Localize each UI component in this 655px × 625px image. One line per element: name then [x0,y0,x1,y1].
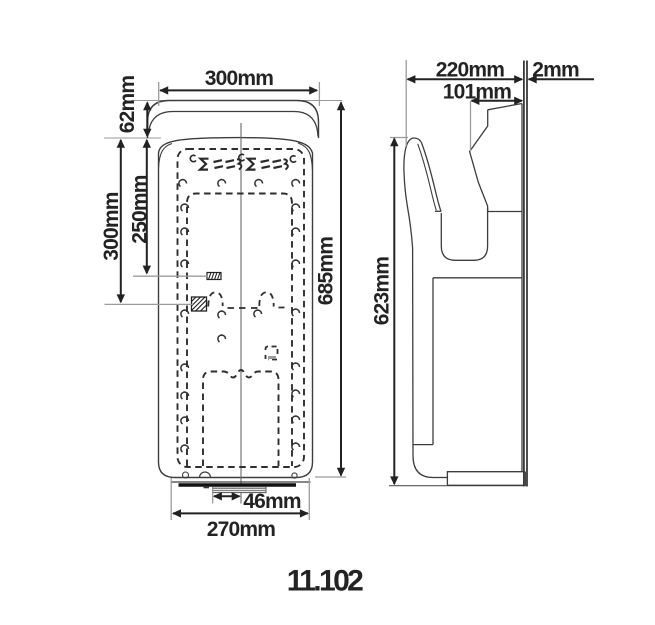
svg-text:101mm: 101mm [443,80,512,103]
svg-text:300mm: 300mm [205,67,274,90]
svg-text:46mm: 46mm [243,490,301,513]
svg-text:250mm: 250mm [129,175,152,244]
svg-text:685mm: 685mm [315,237,338,306]
svg-text:300mm: 300mm [100,192,123,261]
svg-text:623mm: 623mm [371,257,394,326]
svg-text:270mm: 270mm [207,518,276,541]
svg-text:11.102: 11.102 [287,565,363,598]
svg-text:220mm: 220mm [436,59,505,82]
svg-text:2mm: 2mm [532,59,579,82]
svg-text:62mm: 62mm [116,76,139,134]
